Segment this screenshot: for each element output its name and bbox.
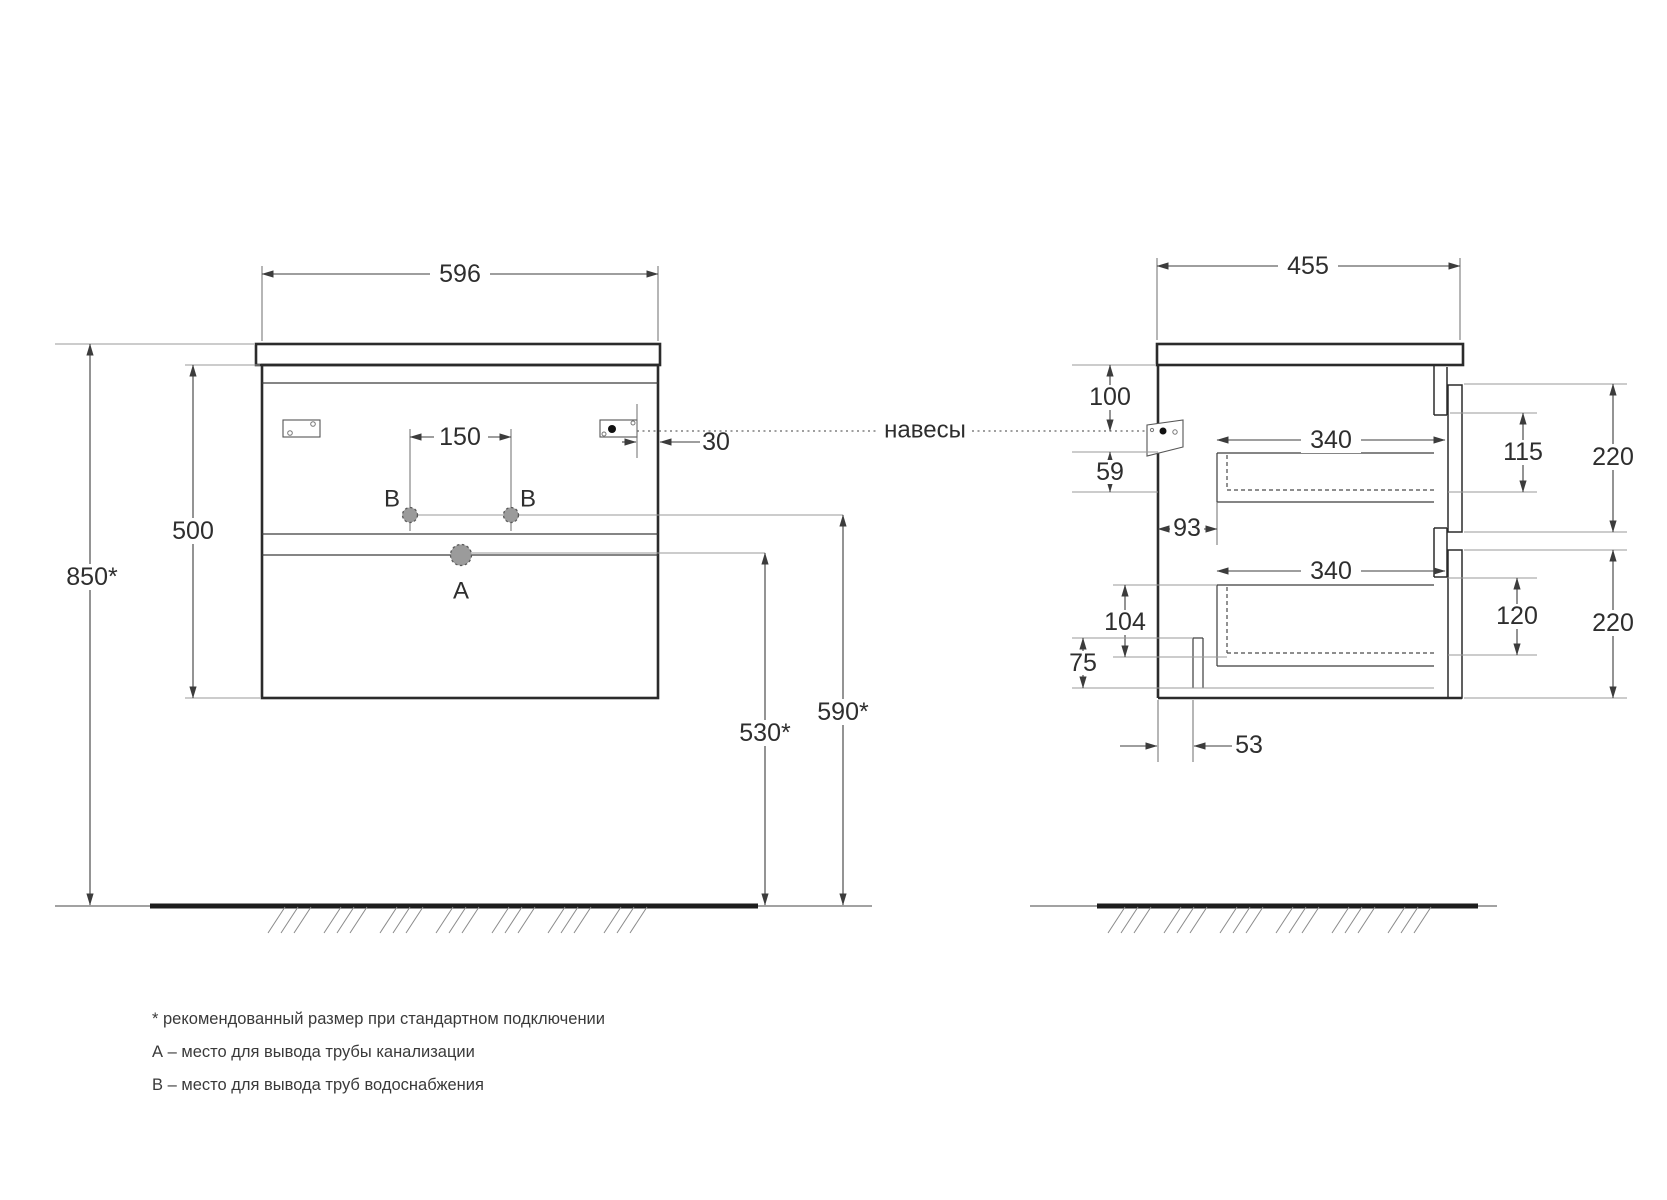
install-height-label: 850* [66, 563, 118, 591]
upper-front-height-label: 220 [1592, 443, 1634, 471]
drain-hole [451, 545, 472, 566]
side-view: 455 [1030, 252, 1642, 933]
top-clearance-label: 100 [1089, 383, 1131, 411]
floor-right [1030, 906, 1497, 933]
upper-drawer-inner-label: 115 [1503, 438, 1543, 466]
front-left-hanger [283, 420, 320, 437]
dim-lower-drawer-floor: 104 [1097, 585, 1227, 657]
hangers-label: навесы [884, 417, 966, 444]
footnote-a: А – место для вывода трубы канализации [152, 1043, 475, 1061]
lower-drawer-inner-label: 120 [1496, 602, 1538, 630]
dim-drain-height: 530* [731, 553, 799, 905]
lower-drawer-length-label: 340 [1310, 557, 1352, 585]
hole-b-right-label: В [520, 486, 536, 513]
floor-left [55, 906, 872, 933]
hanger-to-drawer-label: 59 [1096, 458, 1124, 486]
dim-hanger-to-drawer: 59 [1072, 452, 1158, 492]
back-clearance-label: 93 [1173, 514, 1201, 542]
lower-drawer-front [1448, 550, 1462, 698]
dim-lower-drawer-length: 340 [1217, 557, 1445, 585]
front-countertop [256, 344, 660, 365]
lower-drawer-box [1217, 585, 1434, 666]
technical-drawing-page: { "front_view": { "width_label": "596", … [0, 0, 1667, 1200]
lower-drawer-floor-label: 104 [1104, 608, 1146, 636]
dim-upper-drawer-length: 340 [1217, 426, 1445, 454]
hole-b-left-label: В [384, 486, 400, 513]
holes-spacing-label: 150 [439, 423, 481, 451]
dim-back-clearance: 93 [1158, 502, 1217, 545]
front-width-label: 596 [439, 260, 481, 288]
dim-front-height: 500 [163, 365, 260, 698]
side-hanger-bracket [1147, 420, 1183, 456]
recess-height-label: 75 [1069, 649, 1097, 677]
lower-front-height-label: 220 [1592, 609, 1634, 637]
front-view: 596 30 [55, 260, 877, 933]
upper-drawer-length-label: 340 [1310, 426, 1352, 454]
dim-install-height: 850* [55, 344, 254, 905]
front-right-hanger [600, 420, 637, 437]
bottom-recess [1072, 638, 1434, 688]
drain-height-label: 530* [739, 719, 791, 747]
hanger-inset-label: 30 [702, 428, 730, 456]
vanity-installation-drawing: 596 30 [0, 0, 1667, 1200]
floor-hatching-right [1108, 907, 1431, 933]
dim-recess-depth: 53 [1120, 700, 1263, 762]
recess-depth-label: 53 [1235, 731, 1263, 759]
hanger-mount-point [608, 425, 616, 433]
dim-recess-height: 75 [1063, 638, 1193, 688]
front-height-label: 500 [172, 517, 214, 545]
footnotes: * рекомендованный размер при стандартном… [152, 1010, 605, 1094]
dim-side-depth: 455 [1157, 252, 1460, 340]
supply-height-label: 590* [817, 698, 869, 726]
dim-supply-height: 590* [809, 515, 877, 905]
front-cabinet-body [262, 365, 658, 698]
supply-hole-left [403, 508, 418, 523]
upper-drawer-front [1448, 385, 1462, 532]
floor-hatching-left [268, 907, 647, 933]
upper-drawer-box [1217, 453, 1434, 502]
footnote-asterisk: * рекомендованный размер при стандартном… [152, 1010, 605, 1028]
hole-a-label: А [453, 578, 469, 605]
dim-upper-front-height: 220 [1464, 384, 1642, 532]
dim-front-width: 596 [262, 260, 658, 341]
dim-top-clearance: 100 [1072, 365, 1155, 431]
dim-upper-drawer-inner: 115 [1448, 413, 1550, 492]
supply-hole-right [504, 508, 519, 523]
footnote-b: В – место для вывода труб водоснабжения [152, 1076, 484, 1094]
side-depth-label: 455 [1287, 252, 1329, 280]
side-countertop [1157, 344, 1463, 365]
